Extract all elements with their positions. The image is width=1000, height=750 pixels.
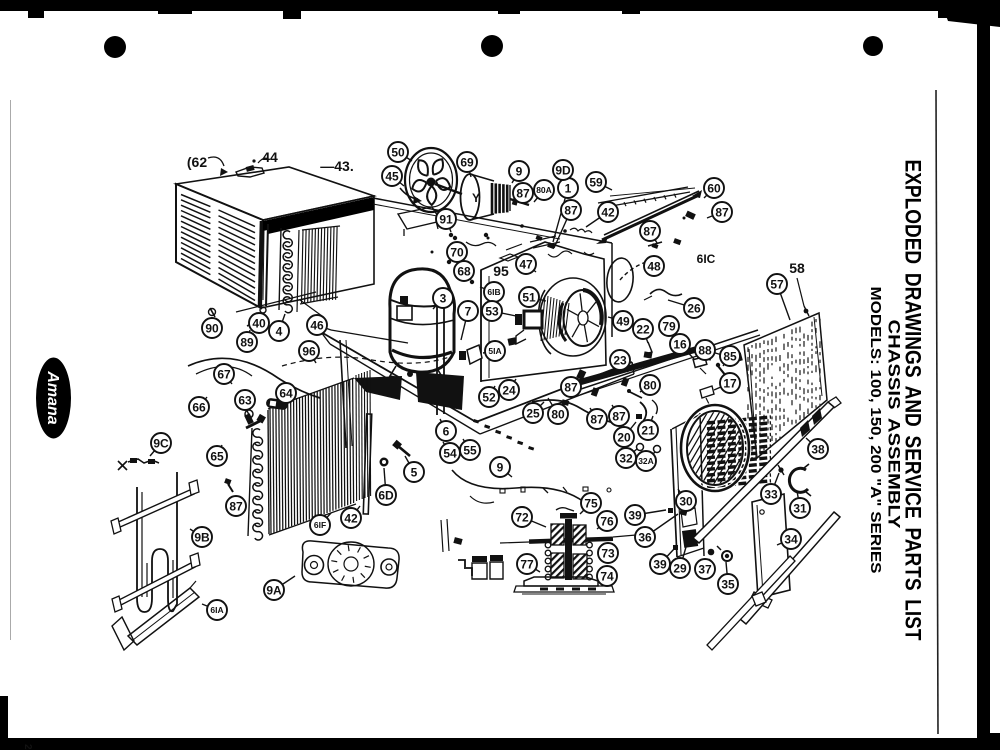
svg-text:91: 91 xyxy=(439,212,453,226)
svg-text:69: 69 xyxy=(460,155,474,169)
svg-text:Amana: Amana xyxy=(44,370,61,424)
svg-text:87: 87 xyxy=(612,409,626,423)
svg-text:9A: 9A xyxy=(266,583,282,597)
svg-text:34: 34 xyxy=(784,532,798,546)
svg-text:37: 37 xyxy=(698,562,712,576)
svg-text:51: 51 xyxy=(522,290,536,304)
svg-text:Y: Y xyxy=(472,191,480,205)
svg-text:MODELS: 100, 150, 200 "A" SERI: MODELS: 100, 150, 200 "A" SERIES xyxy=(867,287,883,574)
svg-text:—43.: —43. xyxy=(320,158,353,174)
svg-text:9: 9 xyxy=(516,164,523,178)
svg-text:88: 88 xyxy=(698,343,712,357)
svg-text:63: 63 xyxy=(238,393,252,407)
svg-text:87: 87 xyxy=(516,186,530,200)
svg-text:16: 16 xyxy=(673,337,687,351)
svg-text:46: 46 xyxy=(310,318,324,332)
svg-text:68: 68 xyxy=(457,264,471,278)
svg-text:9C: 9C xyxy=(153,436,169,450)
svg-text:77: 77 xyxy=(520,557,534,571)
svg-text:1: 1 xyxy=(565,181,572,195)
svg-text:24: 24 xyxy=(502,383,516,397)
svg-text:36: 36 xyxy=(638,530,652,544)
svg-text:32: 32 xyxy=(619,451,633,465)
svg-text:64: 64 xyxy=(279,386,293,400)
svg-text:48: 48 xyxy=(647,259,661,273)
svg-text:5: 5 xyxy=(411,465,418,479)
svg-text:54: 54 xyxy=(443,446,457,460)
svg-text:50: 50 xyxy=(391,145,405,159)
svg-text:74: 74 xyxy=(600,569,614,583)
svg-text:87: 87 xyxy=(643,224,657,238)
svg-text:79: 79 xyxy=(662,319,676,333)
svg-text:9: 9 xyxy=(497,460,504,474)
svg-text:40: 40 xyxy=(252,316,266,330)
svg-text:31: 31 xyxy=(793,501,807,515)
svg-text:21: 21 xyxy=(641,423,655,437)
svg-text:CHASSIS ASSEMBLY: CHASSIS ASSEMBLY xyxy=(885,320,904,530)
svg-text:38: 38 xyxy=(811,442,825,456)
svg-text:17: 17 xyxy=(723,376,737,390)
svg-text:3: 3 xyxy=(440,291,447,305)
svg-text:35: 35 xyxy=(721,577,735,591)
svg-text:20: 20 xyxy=(617,430,631,444)
svg-text:42: 42 xyxy=(601,205,615,219)
svg-text:9B: 9B xyxy=(194,530,210,544)
svg-text:6IB: 6IB xyxy=(487,287,500,297)
svg-text:72: 72 xyxy=(515,510,529,524)
svg-text:44: 44 xyxy=(262,149,278,165)
svg-text:4: 4 xyxy=(276,324,283,338)
svg-text:57: 57 xyxy=(770,277,784,291)
svg-text:30: 30 xyxy=(679,494,693,508)
svg-text:25: 25 xyxy=(526,406,540,420)
svg-text:73: 73 xyxy=(601,546,615,560)
svg-text:29: 29 xyxy=(673,561,687,575)
svg-text:6: 6 xyxy=(443,424,450,438)
svg-text:87: 87 xyxy=(564,203,578,217)
svg-text:87: 87 xyxy=(590,412,604,426)
svg-text:80: 80 xyxy=(551,407,565,421)
svg-text:42: 42 xyxy=(344,511,358,525)
svg-text:59: 59 xyxy=(589,175,603,189)
svg-text:53: 53 xyxy=(485,304,499,318)
svg-text:87: 87 xyxy=(715,205,729,219)
svg-text:47: 47 xyxy=(519,257,533,271)
svg-text:39: 39 xyxy=(628,508,642,522)
svg-text:6IF: 6IF xyxy=(314,520,326,530)
svg-text:55: 55 xyxy=(463,443,477,457)
svg-text:32A: 32A xyxy=(638,456,654,466)
svg-text:80A: 80A xyxy=(536,185,552,195)
svg-text:23: 23 xyxy=(613,353,627,367)
svg-text:7: 7 xyxy=(465,304,472,318)
svg-text:9D: 9D xyxy=(555,163,571,177)
svg-text:85: 85 xyxy=(723,349,737,363)
svg-text:65: 65 xyxy=(210,449,224,463)
svg-text:80: 80 xyxy=(643,378,657,392)
svg-text:45: 45 xyxy=(385,169,399,183)
svg-text:5IA: 5IA xyxy=(488,346,501,356)
svg-text:52: 52 xyxy=(482,390,496,404)
svg-text:60: 60 xyxy=(707,181,721,195)
svg-text:67: 67 xyxy=(217,367,231,381)
svg-text:26: 26 xyxy=(687,301,701,315)
svg-text:90: 90 xyxy=(205,321,219,335)
svg-text:33: 33 xyxy=(764,487,778,501)
svg-text:(62: (62 xyxy=(187,154,207,170)
svg-text:70: 70 xyxy=(450,245,464,259)
svg-text:87: 87 xyxy=(564,380,578,394)
svg-text:6IA: 6IA xyxy=(210,605,223,615)
svg-text:39: 39 xyxy=(653,557,667,571)
svg-text:6IC: 6IC xyxy=(697,252,716,266)
svg-text:95: 95 xyxy=(493,263,509,279)
svg-text:89: 89 xyxy=(240,335,254,349)
svg-text:58: 58 xyxy=(789,260,805,276)
svg-text:75: 75 xyxy=(584,496,598,510)
svg-text:25: 25 xyxy=(22,744,33,750)
svg-text:76: 76 xyxy=(600,514,614,528)
svg-text:22: 22 xyxy=(636,322,650,336)
svg-text:49: 49 xyxy=(616,314,630,328)
svg-text:6D: 6D xyxy=(378,488,394,502)
svg-text:66: 66 xyxy=(192,400,206,414)
svg-text:87: 87 xyxy=(229,499,243,513)
svg-text:96: 96 xyxy=(302,344,316,358)
